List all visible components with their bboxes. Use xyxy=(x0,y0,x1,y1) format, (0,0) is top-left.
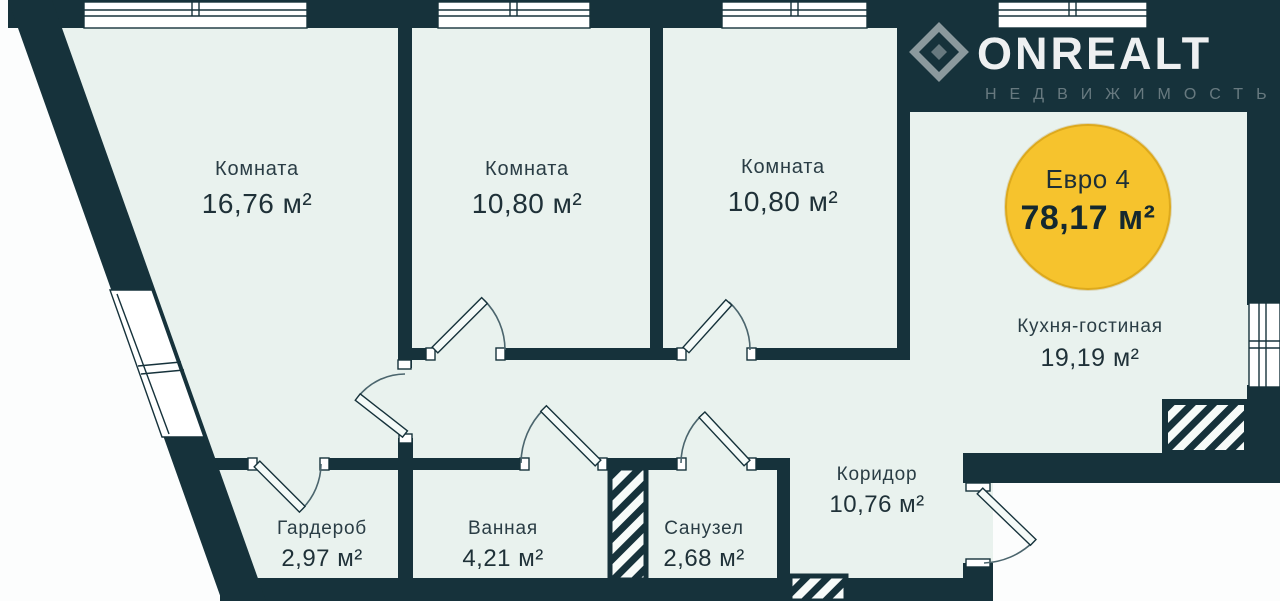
room-2-name: Комната xyxy=(472,158,582,181)
kitchen-area: 19,19 м² xyxy=(1017,344,1163,373)
wc-name: Санузел xyxy=(663,518,744,540)
bath-name: Ванная xyxy=(462,518,543,540)
room-1-area: 16,76 м² xyxy=(202,188,312,220)
wall-bottom-a xyxy=(220,578,790,601)
wall-entry-block xyxy=(963,563,993,601)
wardrobe-name: Гардероб xyxy=(277,518,367,540)
window-icon-room2 xyxy=(438,2,590,28)
room-label-2: Комната 10,80 м² xyxy=(472,158,582,220)
room-label-bath: Ванная 4,21 м² xyxy=(462,518,543,573)
window-icon-kitchen-right xyxy=(1249,303,1280,387)
total-area-value: 78,17 м² xyxy=(1007,199,1169,238)
logo-brand-text: ONREALT xyxy=(977,28,1212,80)
room-label-corridor: Коридор 10,76 м² xyxy=(829,464,924,519)
wc-area: 2,68 м² xyxy=(663,545,744,573)
vent-shaft-icon-corridor xyxy=(790,576,846,601)
room-label-3: Комната 10,80 м² xyxy=(728,156,838,218)
room-3-area: 10,80 м² xyxy=(728,186,838,218)
wall-corridor-b xyxy=(329,458,520,470)
wall-rooms-bottom-a xyxy=(412,348,427,360)
room-1-name: Комната xyxy=(202,158,312,181)
wall-right-upper xyxy=(1247,112,1280,305)
room-label-wc: Санузел 2,68 м² xyxy=(663,518,744,573)
corridor-area: 10,76 м² xyxy=(829,491,924,519)
room-label-wardrobe: Гардероб 2,97 м² xyxy=(277,518,367,573)
window-icon-room3 xyxy=(722,2,867,28)
room-3-name: Комната xyxy=(728,156,838,179)
wall-wc-right xyxy=(777,458,790,578)
wall-room2-room3 xyxy=(650,28,663,360)
wall-room1-room2 xyxy=(398,28,412,368)
wall-bottom-b xyxy=(846,578,963,601)
bath-area: 4,21 м² xyxy=(462,545,543,573)
plan-type: Евро 4 xyxy=(1007,164,1169,195)
wardrobe-area: 2,97 м² xyxy=(277,545,367,573)
room-2-area: 10,80 м² xyxy=(472,188,582,220)
onrealt-house-icon xyxy=(909,22,969,82)
wall-rooms-bottom-c xyxy=(756,348,910,360)
vent-shaft-icon-kitchen xyxy=(1165,402,1247,453)
logo-subtitle-text: НЕДВИЖИМОСТЬ xyxy=(985,86,1280,104)
wall-rooms-bottom-b xyxy=(505,348,677,360)
wall-wardrobe-bath xyxy=(398,438,413,601)
outside-bottom-right xyxy=(993,483,1280,601)
vent-shaft-icon-bath xyxy=(610,468,646,580)
room-label-1: Комната 16,76 м² xyxy=(202,158,312,220)
room-label-kitchen: Кухня-гостиная 19,19 м² xyxy=(1017,316,1163,373)
onrealt-logo: ONREALT НЕДВИЖИМОСТЬ xyxy=(905,20,1265,112)
window-icon-room1 xyxy=(84,2,307,28)
corridor-name: Коридор xyxy=(829,464,924,486)
floor-plan: ONREALT НЕДВИЖИМОСТЬ Евро 4 78,17 м² Ком… xyxy=(0,0,1280,601)
kitchen-name: Кухня-гостиная xyxy=(1017,316,1163,338)
total-area-badge: Евро 4 78,17 м² xyxy=(1005,124,1171,290)
wall-kitchen-bottom xyxy=(963,453,1280,483)
